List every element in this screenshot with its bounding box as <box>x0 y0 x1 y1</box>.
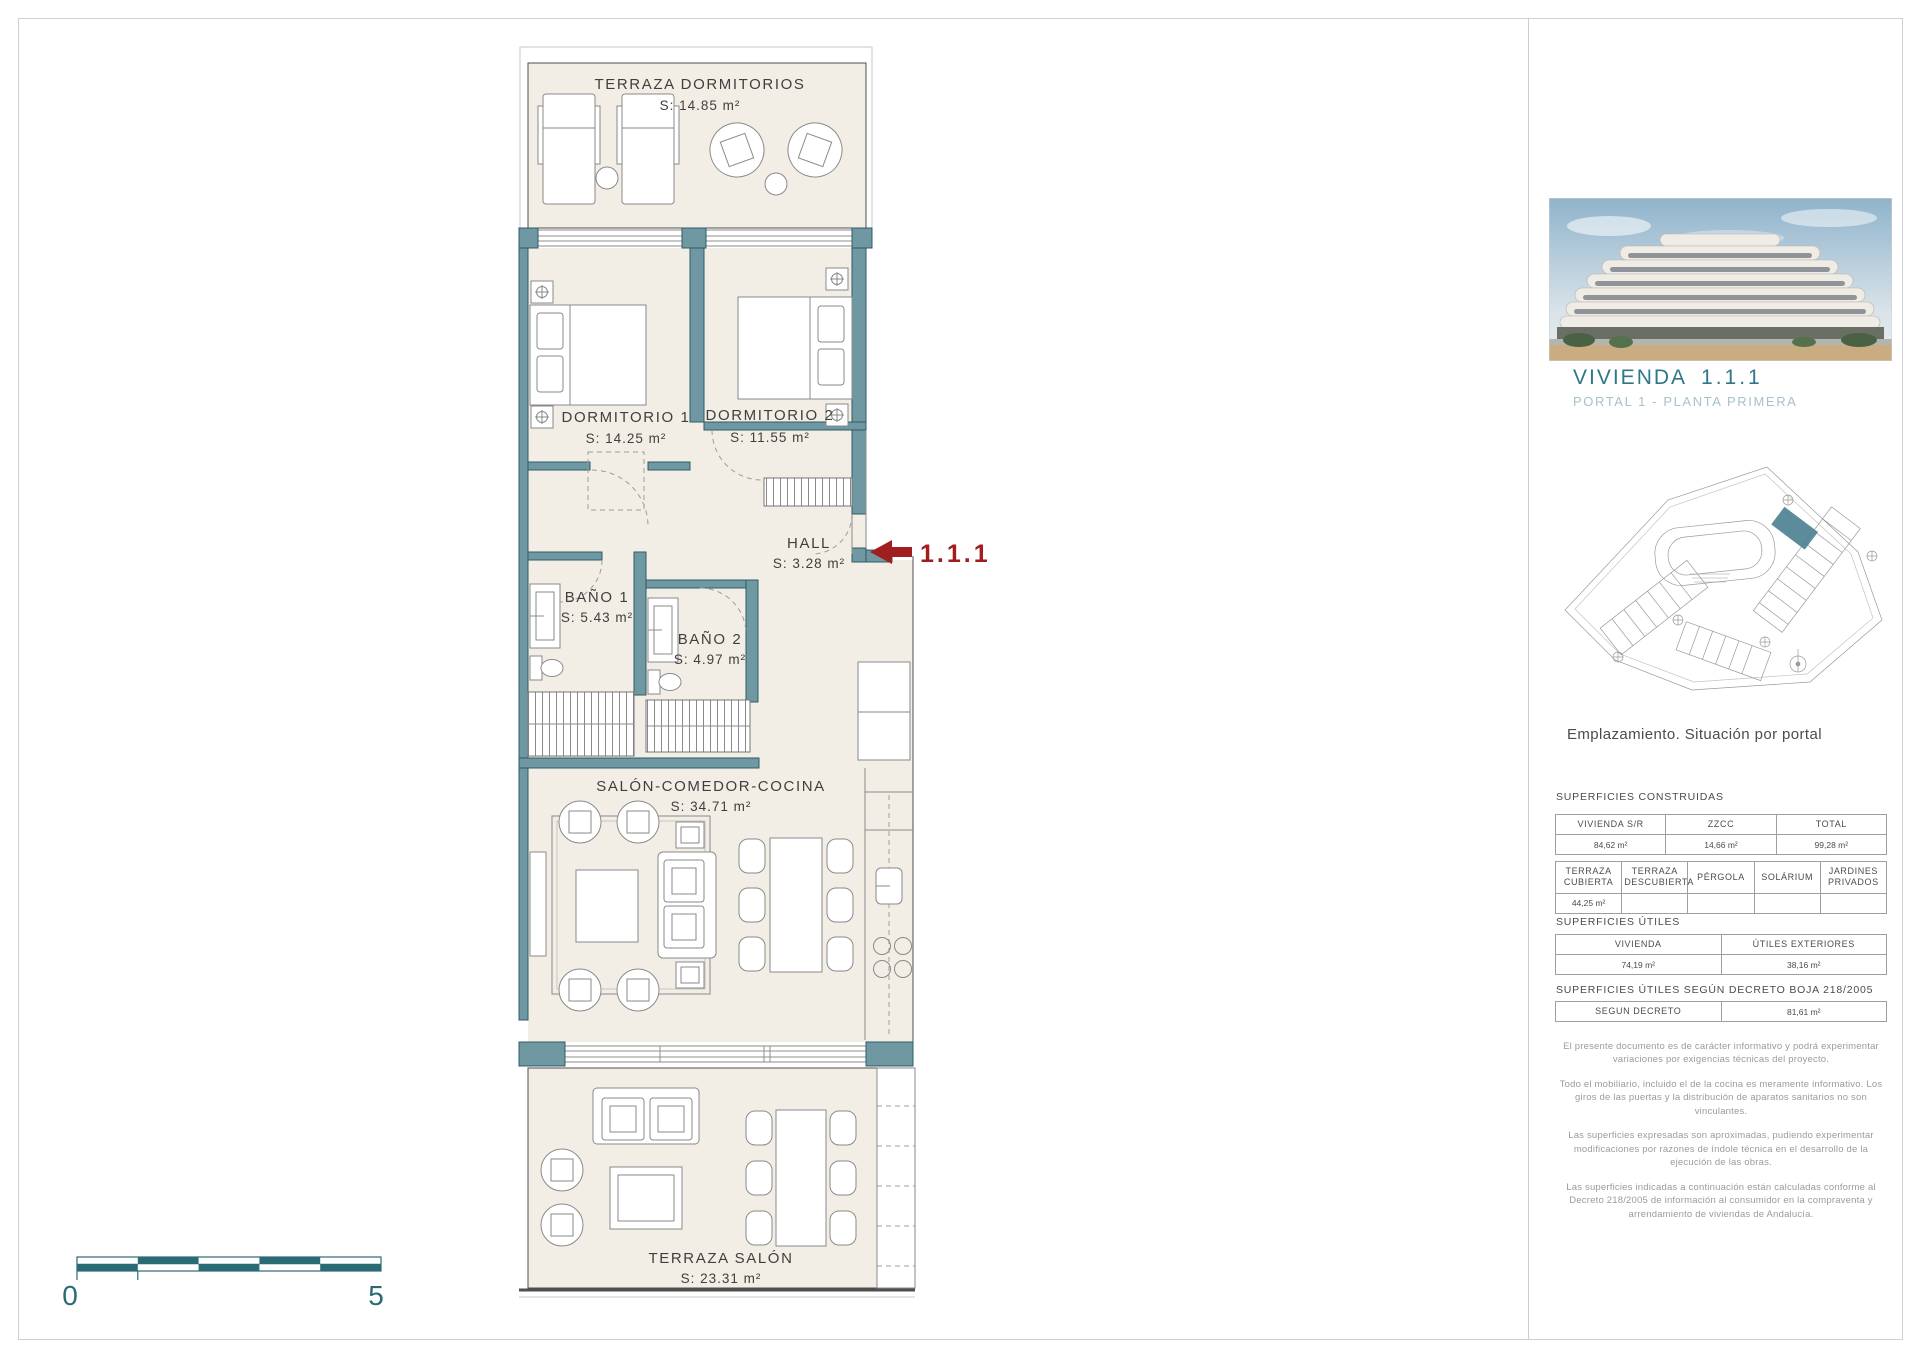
outdoor-dining-table <box>776 1110 826 1246</box>
col-header: TOTAL <box>1776 815 1886 835</box>
site-plan <box>1560 452 1890 704</box>
disclaimer-paragraph: Las superficies indicadas a continuación… <box>1555 1181 1887 1221</box>
cell-value <box>1754 893 1820 913</box>
cell-value: 99,28 m² <box>1776 835 1886 855</box>
room-area: S: 11.55 m² <box>730 430 810 445</box>
sink <box>530 584 560 648</box>
table-superficies-utiles: VIVIENDA ÚTILES EXTERIORES 74,19 m² 38,1… <box>1555 934 1887 975</box>
unit-title-block: VIVIENDA1.1.1 PORTAL 1 - PLANTA PRIMERA <box>1573 366 1797 409</box>
armchair <box>617 969 659 1011</box>
cell-value: 14,66 m² <box>1666 835 1776 855</box>
room-terraza-dormitorios: TERRAZA DORMITORIOS S: 14.85 m² <box>520 47 872 228</box>
section-label-utiles: SUPERFICIES ÚTILES <box>1556 916 1888 928</box>
table-superficies-construidas: VIVIENDA S/R ZZCC TOTAL 84,62 m² 14,66 m… <box>1555 814 1887 855</box>
col-header: ÚTILES EXTERIORES <box>1721 935 1887 955</box>
col-header: TERRAZA DESCUBIERTA <box>1622 862 1688 894</box>
compass-icon <box>1790 649 1806 672</box>
outdoor-sofa <box>593 1088 699 1144</box>
outdoor-chair <box>541 1204 583 1246</box>
armchair <box>559 801 601 843</box>
room-label: DORMITORIO 2 <box>706 407 835 424</box>
room-label: SALÓN-COMEDOR-COCINA <box>596 778 826 795</box>
room-label: BAÑO 1 <box>565 589 630 606</box>
room-area: S: 5.43 m² <box>561 610 633 625</box>
room-label: HALL <box>787 535 831 552</box>
light-point-icon <box>826 268 848 290</box>
cell-value: 74,19 m² <box>1556 955 1722 975</box>
dining-table <box>770 838 822 972</box>
disclaimer-paragraph: Las superficies expresadas son aproximad… <box>1555 1129 1887 1169</box>
room-label: TERRAZA DORMITORIOS <box>595 76 806 93</box>
cell-value <box>1622 893 1688 913</box>
scale-max: 5 <box>368 1280 384 1311</box>
tv-unit <box>530 852 546 956</box>
site-plan-caption: Emplazamiento. Situación por portal <box>1567 726 1822 743</box>
light-point-icon <box>531 406 553 428</box>
bedroom-windows <box>519 228 872 248</box>
coffee-table <box>576 870 638 942</box>
room-area: S: 23.31 m² <box>681 1271 762 1286</box>
room-area: S: 3.28 m² <box>773 556 845 571</box>
central-courtyard <box>1652 518 1777 588</box>
light-point-icon <box>531 281 553 303</box>
unit-number-marker: 1.1.1 <box>920 540 991 568</box>
room-terraza-salon: TERRAZA SALÓN S: 23.31 m² <box>519 1068 915 1297</box>
room-area: S: 34.71 m² <box>671 799 752 814</box>
wardrobe <box>764 478 852 506</box>
cell-value: 38,16 m² <box>1721 955 1887 975</box>
room-label: DORMITORIO 1 <box>562 409 691 426</box>
sun-lounger <box>538 94 600 204</box>
panel-divider <box>1528 18 1529 1339</box>
scale-min: 0 <box>62 1280 78 1311</box>
unit-number: 1.1.1 <box>1701 366 1763 389</box>
table-segun-decreto: SEGUN DECRETO 81,61 m² <box>1555 1001 1887 1022</box>
outdoor-chair <box>541 1149 583 1191</box>
cell-value <box>1688 893 1754 913</box>
col-header: ZZCC <box>1666 815 1776 835</box>
col-header: VIVIENDA S/R <box>1556 815 1666 835</box>
cell-value <box>1820 893 1886 913</box>
double-bed <box>738 297 852 399</box>
building-photo <box>1549 198 1892 361</box>
disclaimer-block: El presente documento es de carácter inf… <box>1555 1040 1887 1232</box>
col-header: JARDINES PRIVADOS <box>1820 862 1886 894</box>
sofa <box>658 852 716 958</box>
salon-window <box>519 1042 913 1066</box>
scale-bar: 0 5 <box>62 1257 384 1311</box>
floor-plan: TERRAZA DORMITORIOS S: 14.85 m² <box>0 0 1000 1357</box>
room-area: S: 4.97 m² <box>674 652 746 667</box>
col-header: VIVIENDA <box>1556 935 1722 955</box>
disclaimer-paragraph: Todo el mobiliario, incluido el de la co… <box>1555 1078 1887 1118</box>
unit-title: VIVIENDA <box>1573 366 1687 389</box>
room-area: S: 14.85 m² <box>660 98 741 113</box>
building-wing-bottom <box>1676 622 1771 681</box>
survey-markers <box>1613 495 1877 662</box>
unit-subtitle: PORTAL 1 - PLANTA PRIMERA <box>1573 394 1797 409</box>
col-header: SOLÁRIUM <box>1754 862 1820 894</box>
table-superficies-exteriores: TERRAZA CUBIERTA TERRAZA DESCUBIERTA PÉR… <box>1555 861 1887 914</box>
disclaimer-paragraph: El presente documento es de carácter inf… <box>1555 1040 1887 1067</box>
side-table <box>596 167 618 189</box>
side-table <box>676 962 704 988</box>
cell-value: 81,61 m² <box>1721 1002 1887 1022</box>
section-label-construidas: SUPERFICIES CONSTRUIDAS <box>1556 791 1888 803</box>
col-header: TERRAZA CUBIERTA <box>1556 862 1622 894</box>
terrace-planter-strip <box>877 1068 915 1288</box>
plan-sheet: TERRAZA DORMITORIOS S: 14.85 m² <box>0 0 1920 1357</box>
armchair <box>617 801 659 843</box>
cell-value: 44,25 m² <box>1556 893 1622 913</box>
room-area: S: 14.25 m² <box>586 431 667 446</box>
col-header: SEGUN DECRETO <box>1556 1002 1722 1022</box>
double-bed <box>530 305 646 405</box>
section-label-decreto: SUPERFICIES ÚTILES SEGÚN DECRETO BOJA 21… <box>1556 984 1888 996</box>
armchair <box>559 969 601 1011</box>
outdoor-table <box>610 1167 682 1229</box>
outdoor-dining-set <box>746 1110 856 1246</box>
dining-set <box>739 838 853 972</box>
room-label: BAÑO 2 <box>678 631 743 648</box>
room-label: TERRAZA SALÓN <box>649 1250 794 1267</box>
side-table <box>765 173 787 195</box>
col-header: PÉRGOLA <box>1688 862 1754 894</box>
highlighted-unit <box>1771 507 1818 550</box>
side-table <box>676 822 704 848</box>
kitchen-tall-unit <box>858 662 910 760</box>
cell-value: 84,62 m² <box>1556 835 1666 855</box>
